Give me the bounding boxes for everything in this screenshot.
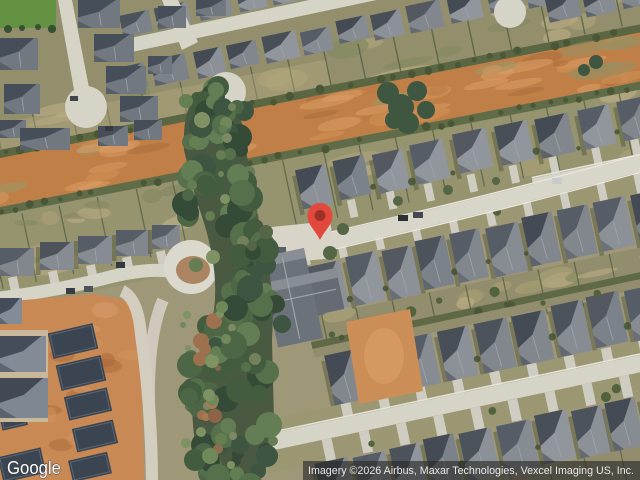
svg-text:Google: Google — [7, 457, 61, 478]
svg-text:Imagery ©2026 Airbus, Maxar Te: Imagery ©2026 Airbus, Maxar Technologies… — [308, 465, 634, 477]
